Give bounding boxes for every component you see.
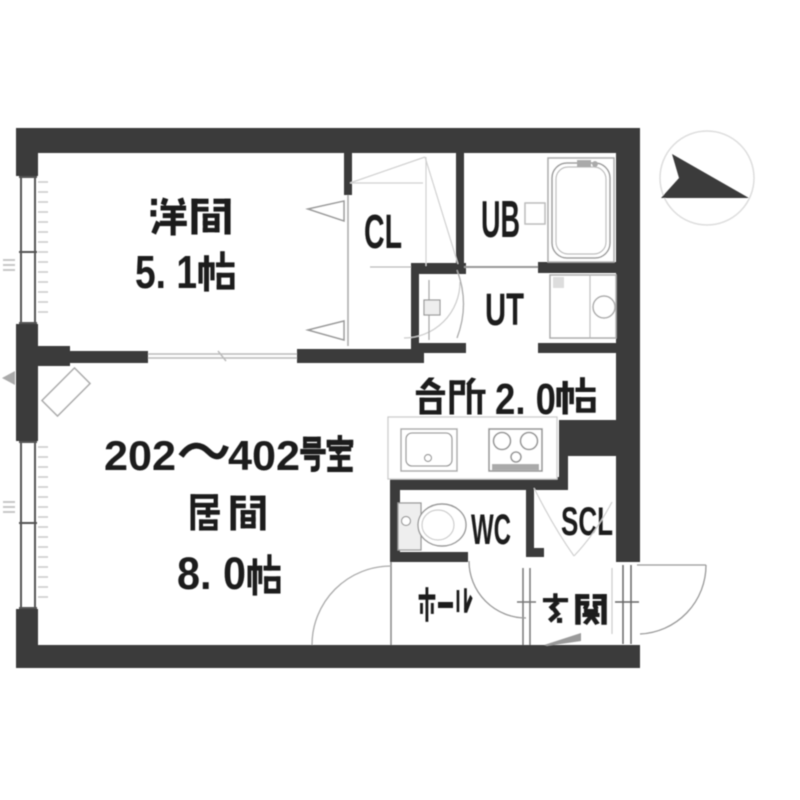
svg-text:8. 0: 8. 0: [177, 548, 246, 599]
svg-text:UB: UB: [481, 191, 520, 249]
svg-text:CL: CL: [364, 206, 402, 259]
svg-text:5. 1: 5. 1: [135, 246, 197, 298]
svg-text:UT: UT: [485, 284, 524, 335]
svg-text:402: 402: [228, 432, 300, 479]
svg-text:SCL: SCL: [561, 500, 613, 544]
svg-text:WC: WC: [471, 506, 511, 554]
svg-text:202: 202: [104, 432, 176, 479]
